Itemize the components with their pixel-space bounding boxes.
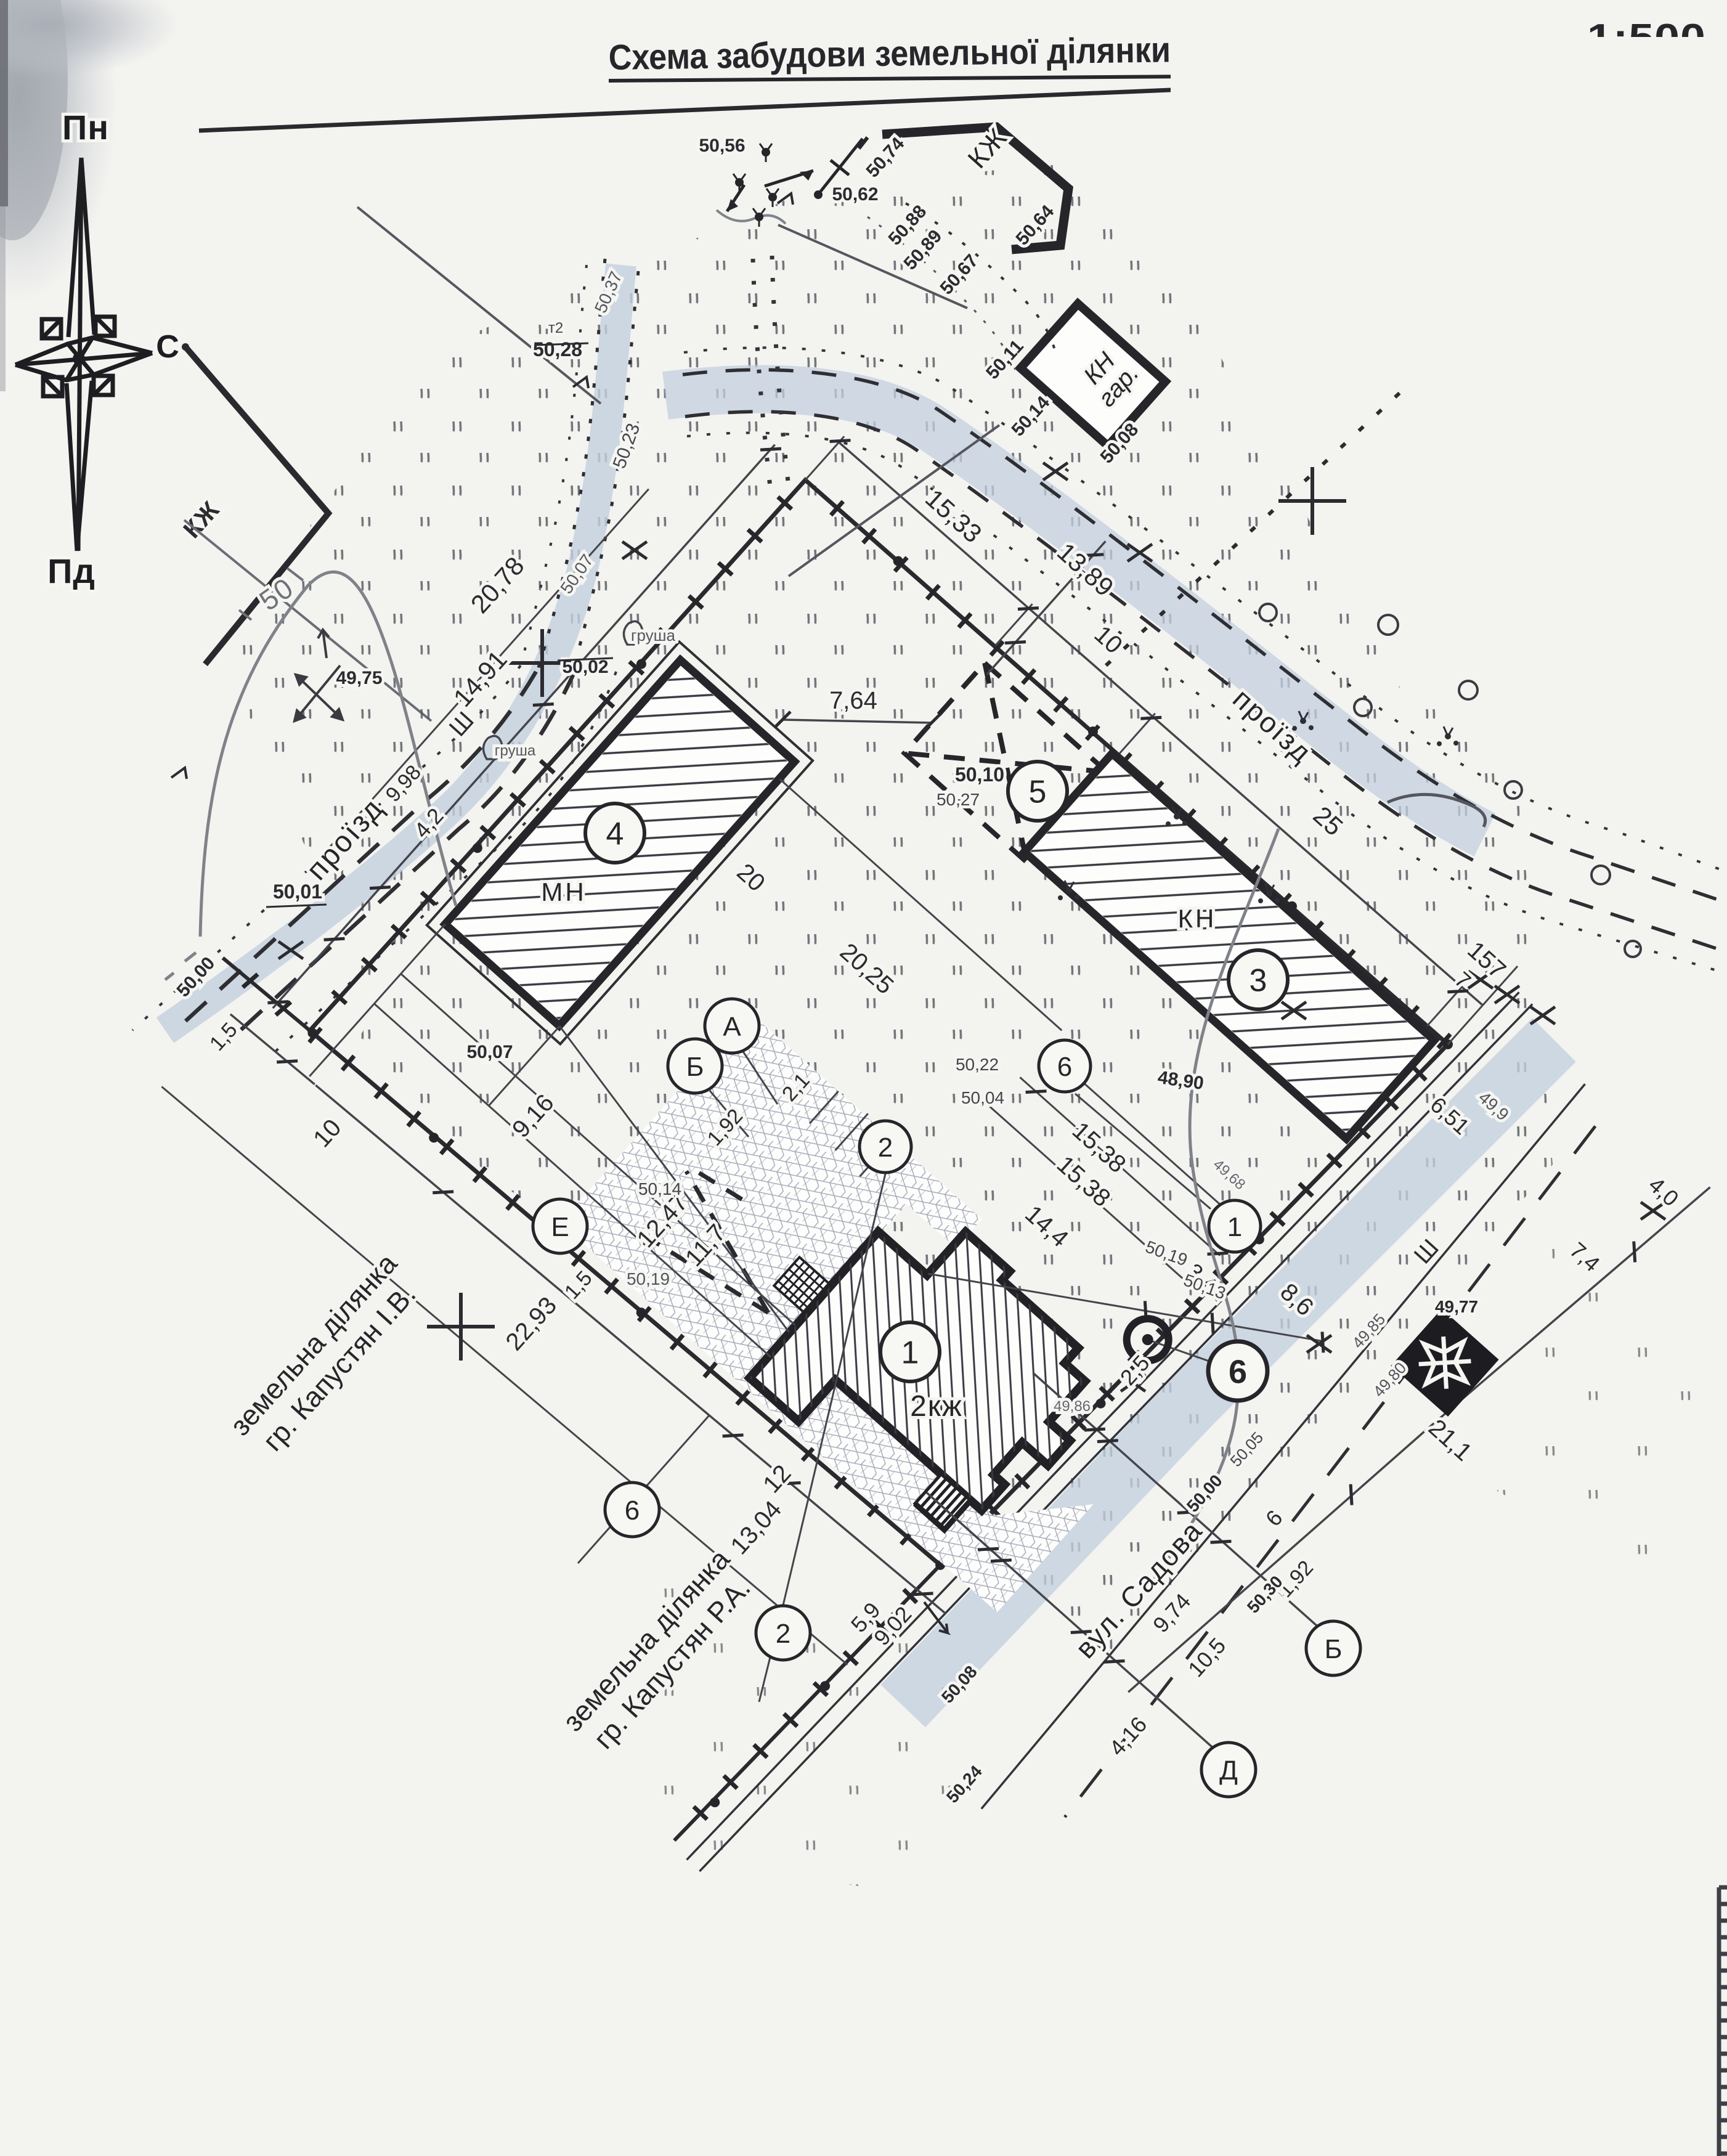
svg-text:5: 5 [1029, 775, 1047, 810]
svg-text:Е: Е [551, 1212, 569, 1242]
svg-text:50,56: 50,56 [699, 136, 745, 156]
svg-text:50,01: 50,01 [273, 881, 322, 903]
svg-text:Б: Б [1325, 1634, 1343, 1664]
svg-text:49,86: 49,86 [1054, 1398, 1091, 1415]
svg-text:Пн: Пн [62, 108, 109, 147]
svg-text:50,27: 50,27 [937, 790, 980, 809]
svg-text:КН: КН [1178, 904, 1217, 933]
svg-text:50,14: 50,14 [638, 1179, 681, 1198]
svg-text:Пд: Пд [47, 551, 95, 590]
svg-text:груша: груша [495, 742, 536, 759]
svg-text:груша: груша [631, 626, 676, 645]
svg-text:2: 2 [878, 1133, 893, 1163]
svg-text:4: 4 [606, 816, 624, 852]
svg-text:2кж: 2кж [910, 1390, 963, 1423]
svg-text:1: 1 [1227, 1212, 1242, 1242]
svg-text:49,77: 49,77 [1435, 1297, 1478, 1316]
svg-text:6: 6 [625, 1495, 640, 1526]
svg-text:Схема забудови земельної ділян: Схема забудови земельної ділянки [608, 30, 1171, 78]
svg-text:49,75: 49,75 [336, 668, 382, 688]
svg-text:6: 6 [1057, 1052, 1072, 1082]
svg-text:С: С [156, 329, 179, 365]
svg-text:50,04: 50,04 [961, 1088, 1004, 1107]
svg-text:2: 2 [776, 1619, 790, 1649]
svg-text:7,64: 7,64 [829, 687, 877, 714]
svg-text:6: 6 [1229, 1353, 1247, 1390]
svg-text:т2: т2 [548, 320, 563, 336]
svg-text:50,10: 50,10 [955, 763, 1004, 786]
svg-text:Д: Д [1219, 1755, 1238, 1786]
svg-text:А: А [723, 1012, 741, 1042]
svg-text:50,19: 50,19 [627, 1269, 670, 1288]
svg-text:50,62: 50,62 [832, 184, 878, 205]
svg-text:50,22: 50,22 [956, 1055, 999, 1074]
svg-text:50,07: 50,07 [466, 1042, 513, 1062]
svg-text:3: 3 [1250, 963, 1267, 999]
svg-text:1: 1 [901, 1335, 919, 1371]
svg-text:МН: МН [541, 877, 586, 906]
svg-text:Б: Б [686, 1052, 704, 1082]
svg-text:50,28: 50,28 [533, 338, 582, 360]
